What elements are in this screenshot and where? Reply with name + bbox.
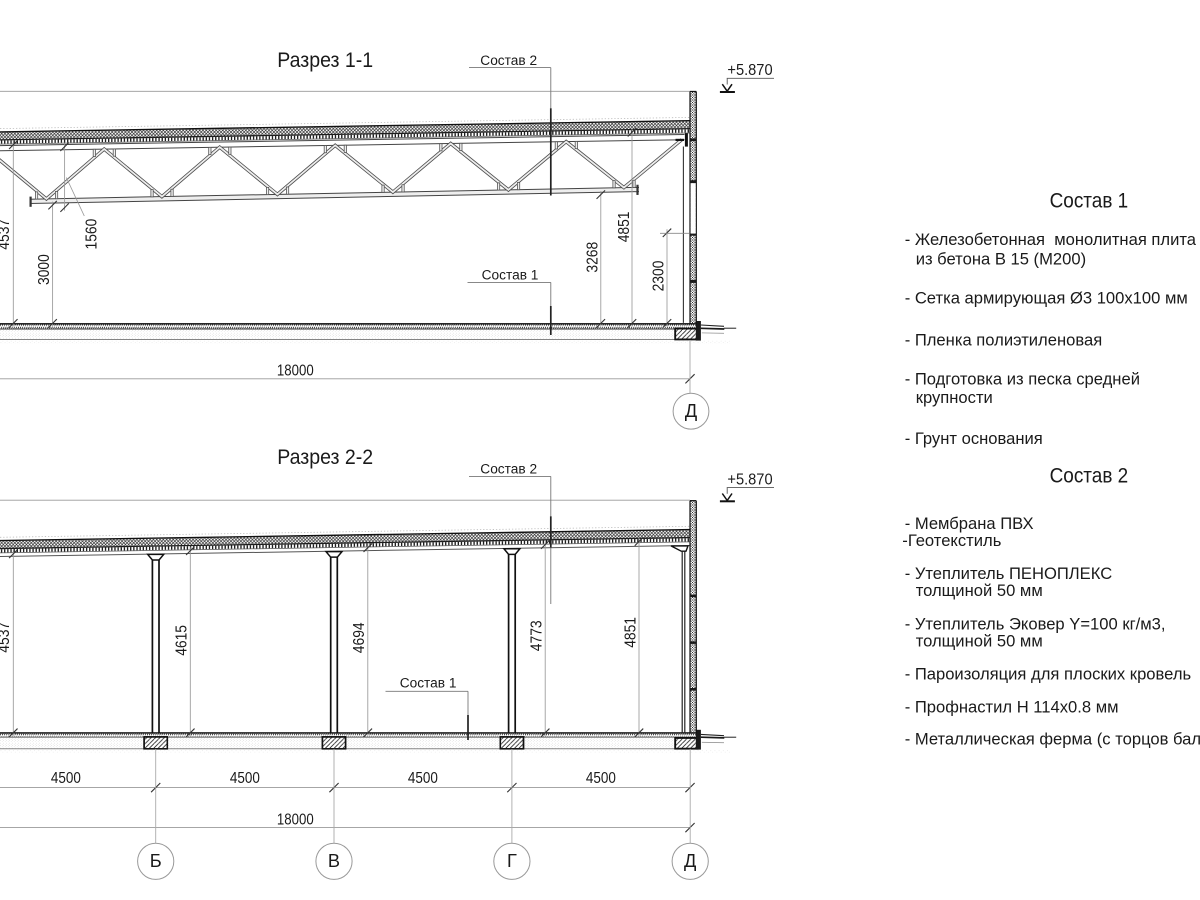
svg-text:- Профнастил Н 114х0.8 мм: - Профнастил Н 114х0.8 мм: [905, 697, 1119, 716]
svg-text:Д: Д: [685, 401, 697, 421]
svg-text:4500: 4500: [230, 770, 260, 787]
svg-text:- Пароизоляция для плоских кро: - Пароизоляция для плоских кровель: [905, 665, 1191, 684]
svg-text:Состав 1: Состав 1: [482, 267, 539, 283]
svg-text:Разрез 1-1: Разрез 1-1: [277, 48, 373, 72]
svg-text:В: В: [328, 851, 340, 871]
svg-text:+5.870: +5.870: [727, 62, 772, 79]
svg-text:4537: 4537: [0, 622, 13, 653]
svg-text:4694: 4694: [351, 622, 368, 653]
svg-text:2300: 2300: [651, 261, 668, 292]
svg-text:4851: 4851: [623, 617, 640, 648]
svg-text:- Металлическая ферма (с торцо: - Металлическая ферма (с торцов балки: [905, 729, 1200, 748]
svg-text:3268: 3268: [585, 242, 602, 273]
svg-text:4500: 4500: [51, 770, 81, 787]
svg-text:Состав 2: Состав 2: [1050, 465, 1129, 488]
svg-text:толщиной 50 мм: толщиной 50 мм: [916, 581, 1043, 600]
svg-text:- Пленка полиэтиленовая: - Пленка полиэтиленовая: [905, 331, 1103, 350]
svg-text:Разрез 2-2: Разрез 2-2: [277, 445, 373, 469]
svg-text:Д: Д: [684, 851, 696, 871]
svg-text:4500: 4500: [408, 770, 438, 787]
svg-text:+5.870: +5.870: [727, 472, 772, 489]
svg-text:Г: Г: [507, 851, 517, 871]
svg-text:18000: 18000: [277, 812, 314, 829]
svg-text:4500: 4500: [586, 770, 616, 787]
svg-text:4851: 4851: [616, 212, 633, 243]
svg-text:1560: 1560: [83, 219, 100, 250]
svg-text:18000: 18000: [277, 363, 314, 380]
svg-text:4537: 4537: [0, 219, 13, 250]
svg-text:из бетона В 15 (М200): из бетона В 15 (М200): [916, 250, 1086, 269]
svg-text:- Подготовка из песка средней: - Подготовка из песка средней: [905, 370, 1140, 389]
svg-text:4615: 4615: [174, 625, 191, 656]
svg-text:3000: 3000: [36, 254, 53, 285]
svg-text:Состав 2: Состав 2: [480, 53, 537, 69]
svg-text:Б: Б: [150, 851, 162, 871]
svg-text:толщиной 50 мм: толщиной 50 мм: [916, 632, 1043, 651]
svg-text:Состав 1: Состав 1: [1050, 190, 1129, 213]
svg-text:Состав 1: Состав 1: [400, 676, 457, 692]
svg-text:- Грунт основания: - Грунт основания: [905, 429, 1043, 448]
svg-text:крупности: крупности: [916, 388, 993, 407]
svg-text:- Сетка армирующая Ø3 100х100: - Сетка армирующая Ø3 100х100 мм: [905, 289, 1188, 308]
svg-text:Состав 2: Состав 2: [480, 461, 537, 477]
svg-text:-Геотекстиль: -Геотекстиль: [902, 531, 1001, 550]
svg-text:4773: 4773: [529, 620, 546, 651]
svg-text:- Железобетонная монолитная п: - Железобетонная монолитная плита: [905, 230, 1197, 249]
svg-text:- Утеплитель ПЕНОПЛЕКС: - Утеплитель ПЕНОПЛЕКС: [905, 564, 1113, 583]
